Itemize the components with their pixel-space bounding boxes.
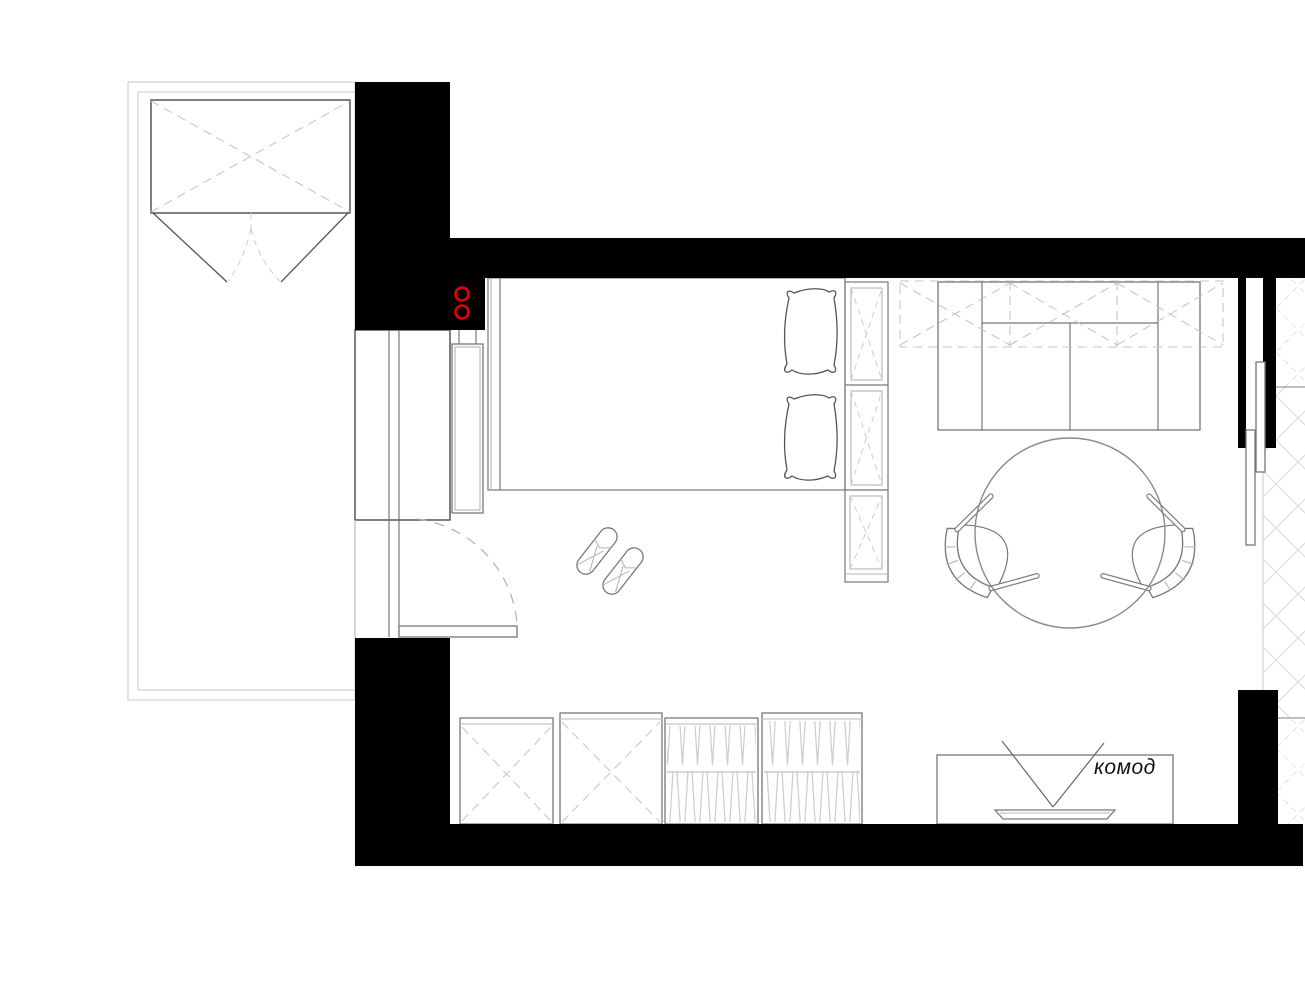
hatch-upper [1276,278,1305,387]
built-in-closet [355,330,450,520]
tv-screen [995,810,1115,819]
floor-plan: комод [0,0,1305,1000]
radiator-body [452,344,483,513]
wall-bottom-left-column [355,638,450,824]
pillow-bottom [785,395,837,480]
slippers-pair [573,524,646,598]
double-bed [488,278,845,490]
wardrobe-door-flaps [153,213,348,282]
door-swing-arc [417,519,517,623]
cabinet-row [460,713,862,824]
chair-left [928,496,1037,612]
hatch-lower [1276,718,1305,824]
wall-right-pier [1238,690,1278,824]
sofa-outline [938,282,1200,430]
wall-right-bar-a [1238,278,1246,448]
chair-right [1103,496,1212,612]
pillow-top [785,289,837,374]
bedside-shelving [845,282,888,582]
bed-outline [488,278,845,490]
balcony [128,82,355,700]
radiator [452,330,483,513]
door-leaf [399,626,517,637]
shelf-x-marks [850,288,882,569]
dresser-label: комод [1094,756,1184,780]
hatch-middle [1276,387,1305,718]
sliding-door [1246,362,1265,545]
sliding-door-panel-1 [1256,362,1265,472]
wall-bottom-band [355,824,1303,866]
hanging-clothes-hatch [667,726,756,822]
hatch-middle-left [1263,448,1276,690]
wall-pier-left [355,278,485,330]
dining-set [928,438,1212,628]
entry-zone [355,330,517,638]
sliding-door-panel-2 [1246,430,1255,545]
wall-top-band [355,238,1305,278]
sofa [938,282,1200,430]
dresser-with-tv [937,741,1173,824]
wall-left-column [355,82,450,238]
round-table [975,438,1165,628]
plan-drawing [0,0,1305,1000]
wardrobe-door-swing-dashed [228,213,280,281]
base-cabinet-2 [560,713,662,824]
